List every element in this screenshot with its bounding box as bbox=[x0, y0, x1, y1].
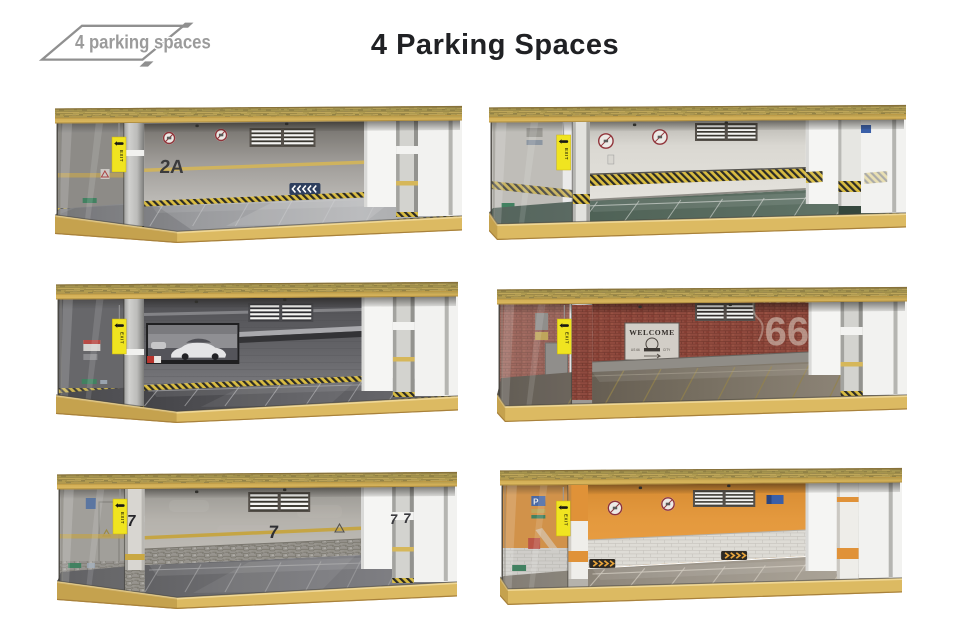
svg-text:EXIT: EXIT bbox=[564, 514, 569, 526]
svg-text:2A: 2A bbox=[159, 157, 185, 178]
svg-text:US 66: US 66 bbox=[631, 348, 640, 352]
svg-text:EXIT: EXIT bbox=[564, 148, 569, 160]
svg-text:7: 7 bbox=[267, 522, 279, 542]
svg-text:CITY: CITY bbox=[663, 348, 671, 352]
svg-text:EXIT: EXIT bbox=[120, 332, 125, 344]
svg-text:EXIT: EXIT bbox=[119, 150, 124, 162]
svg-text:66: 66 bbox=[765, 310, 810, 354]
svg-text:EXIT: EXIT bbox=[565, 332, 570, 344]
svg-text:EXIT: EXIT bbox=[120, 512, 125, 524]
svg-text:WELCOME: WELCOME bbox=[629, 328, 675, 337]
